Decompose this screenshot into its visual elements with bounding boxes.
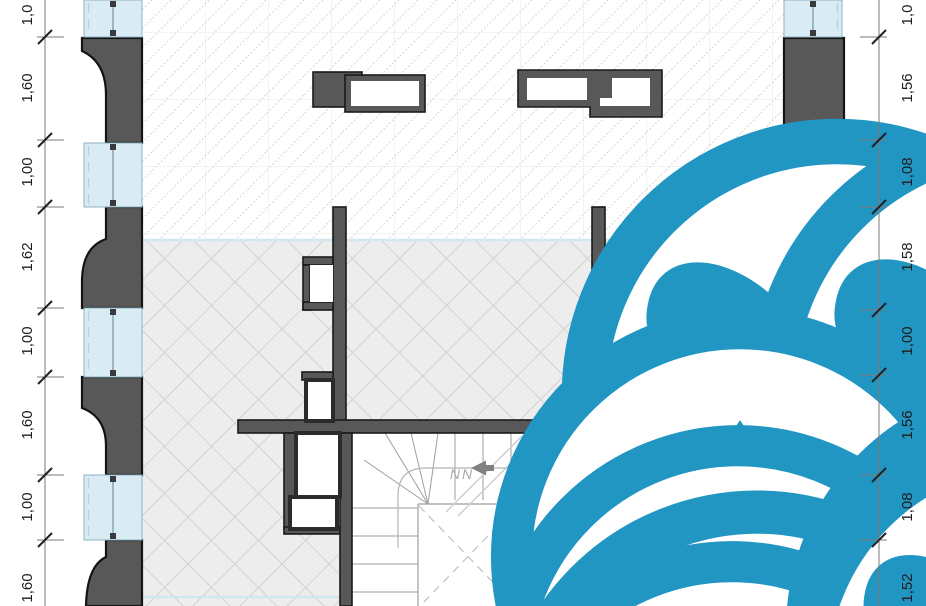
window-jamb bbox=[110, 200, 116, 206]
window-jamb bbox=[110, 30, 116, 36]
dimension-label: 1,62 bbox=[19, 242, 36, 271]
dimension-label: 1,00 bbox=[19, 492, 36, 521]
window-jamb bbox=[110, 1, 116, 7]
shaft-box bbox=[290, 497, 337, 529]
window-jamb bbox=[110, 309, 116, 315]
window-jamb bbox=[810, 30, 816, 36]
exterior-wall-segment bbox=[82, 207, 142, 308]
dimension-label: 1,60 bbox=[19, 73, 36, 102]
dimension-label: 1,00 bbox=[899, 326, 916, 355]
stair-note-label: NN bbox=[450, 466, 474, 482]
exterior-wall-segment bbox=[82, 38, 142, 143]
window-jamb bbox=[110, 144, 116, 150]
window-jamb bbox=[110, 476, 116, 482]
dimension-label: 1,0 bbox=[19, 5, 36, 26]
window-jamb bbox=[810, 1, 816, 7]
floor-plan-drawing: NN 20,46 bbox=[0, 0, 926, 606]
floor-plan: NN 20,46 bbox=[0, 0, 926, 606]
dimension-label: 1,56 bbox=[899, 73, 916, 102]
dimension-label: 1,08 bbox=[899, 157, 916, 186]
window-jamb bbox=[110, 370, 116, 376]
dimension-label: 1,52 bbox=[899, 573, 916, 602]
shaft-box bbox=[306, 380, 333, 421]
left-dimension-string: 1,01,601,001,621,001,601,001,60 bbox=[19, 0, 64, 606]
dimension-label: 1,58 bbox=[899, 242, 916, 271]
shaft-box bbox=[296, 433, 340, 497]
exterior-wall-segment bbox=[82, 377, 142, 475]
dimension-label: 1,60 bbox=[19, 573, 36, 602]
dimension-label: 1,00 bbox=[19, 326, 36, 355]
window-jamb bbox=[110, 533, 116, 539]
exterior-wall-segment bbox=[86, 540, 142, 606]
dimension-label: 1,08 bbox=[899, 492, 916, 521]
dimension-label: 1,60 bbox=[19, 410, 36, 439]
dimension-label: 1,56 bbox=[899, 410, 916, 439]
dimension-label: 1,0 bbox=[899, 5, 916, 26]
dimension-label: 1,00 bbox=[19, 157, 36, 186]
